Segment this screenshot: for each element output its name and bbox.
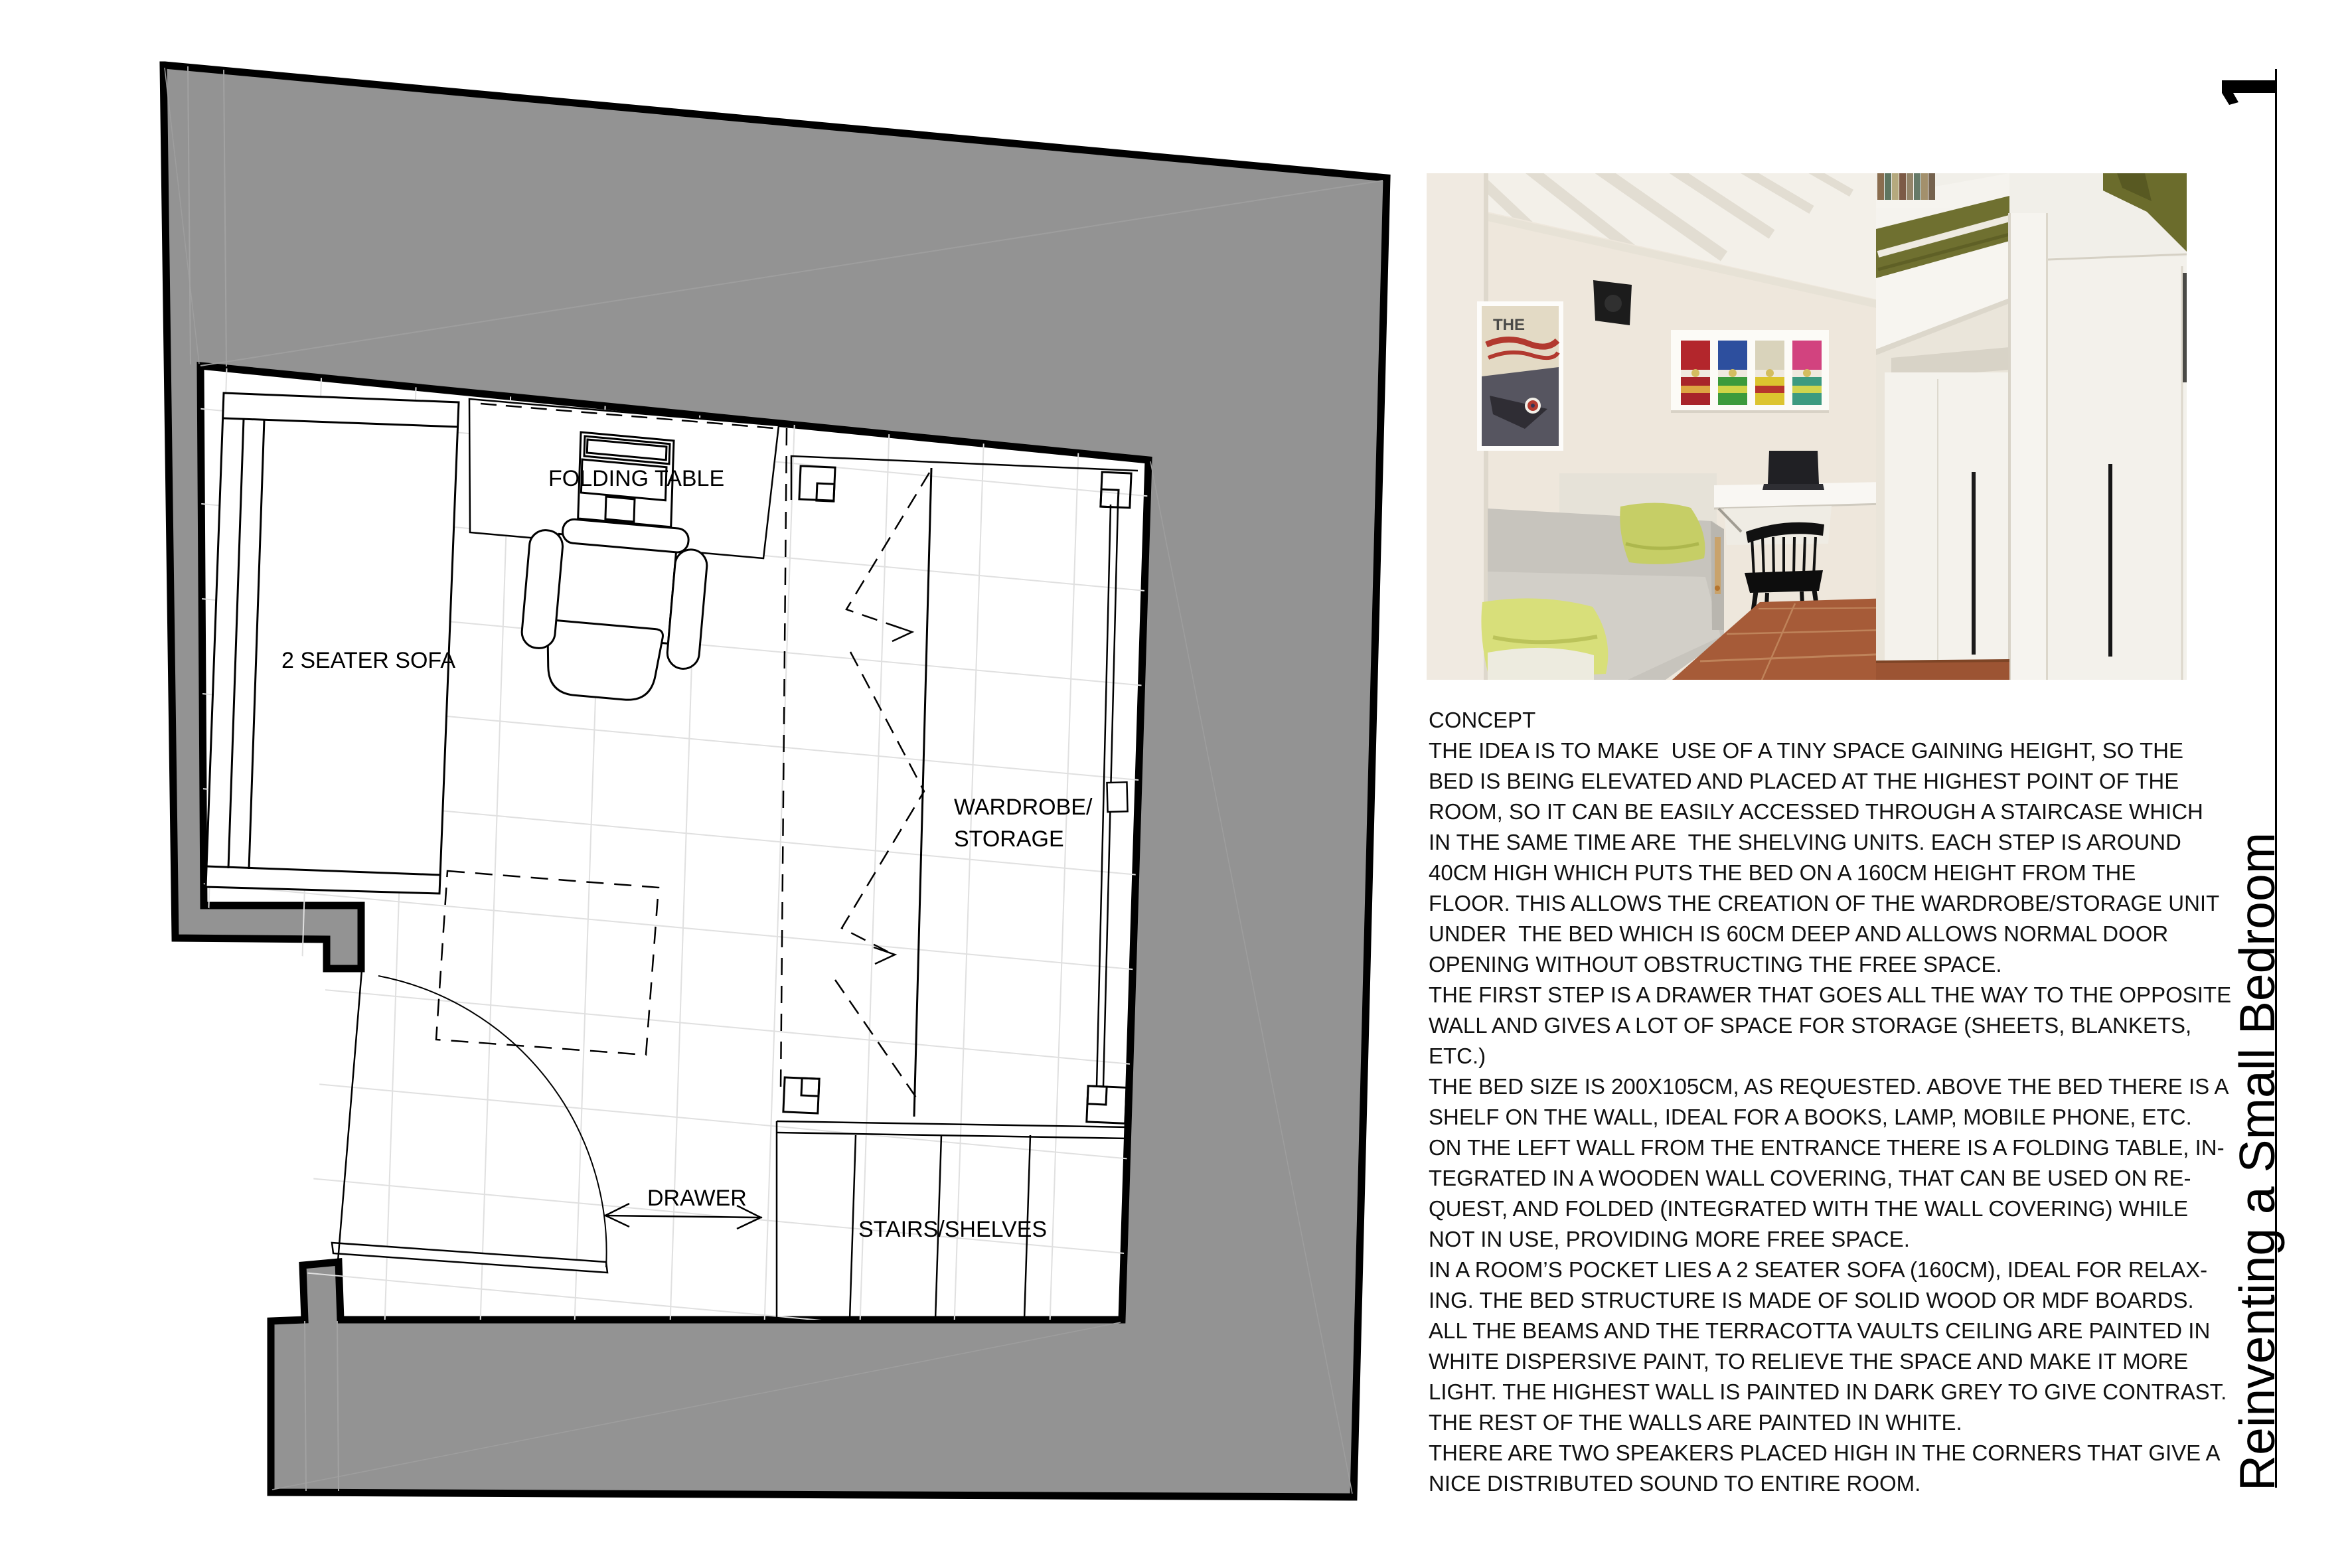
svg-text:STORAGE: STORAGE [954,826,1064,852]
svg-text:Reinventing a Small Bedroom: Reinventing a Small Bedroom [2229,832,2285,1491]
svg-text:2 SEATER SOFA: 2 SEATER SOFA [281,648,455,673]
svg-text:DRAWER: DRAWER [647,1186,747,1211]
svg-text:THE: THE [1493,316,1525,334]
svg-text:WARDROBE/: WARDROBE/ [954,795,1093,820]
svg-text:STAIRS/SHELVES: STAIRS/SHELVES [858,1217,1047,1242]
svg-text:FOLDING TABLE: FOLDING TABLE [548,466,724,491]
